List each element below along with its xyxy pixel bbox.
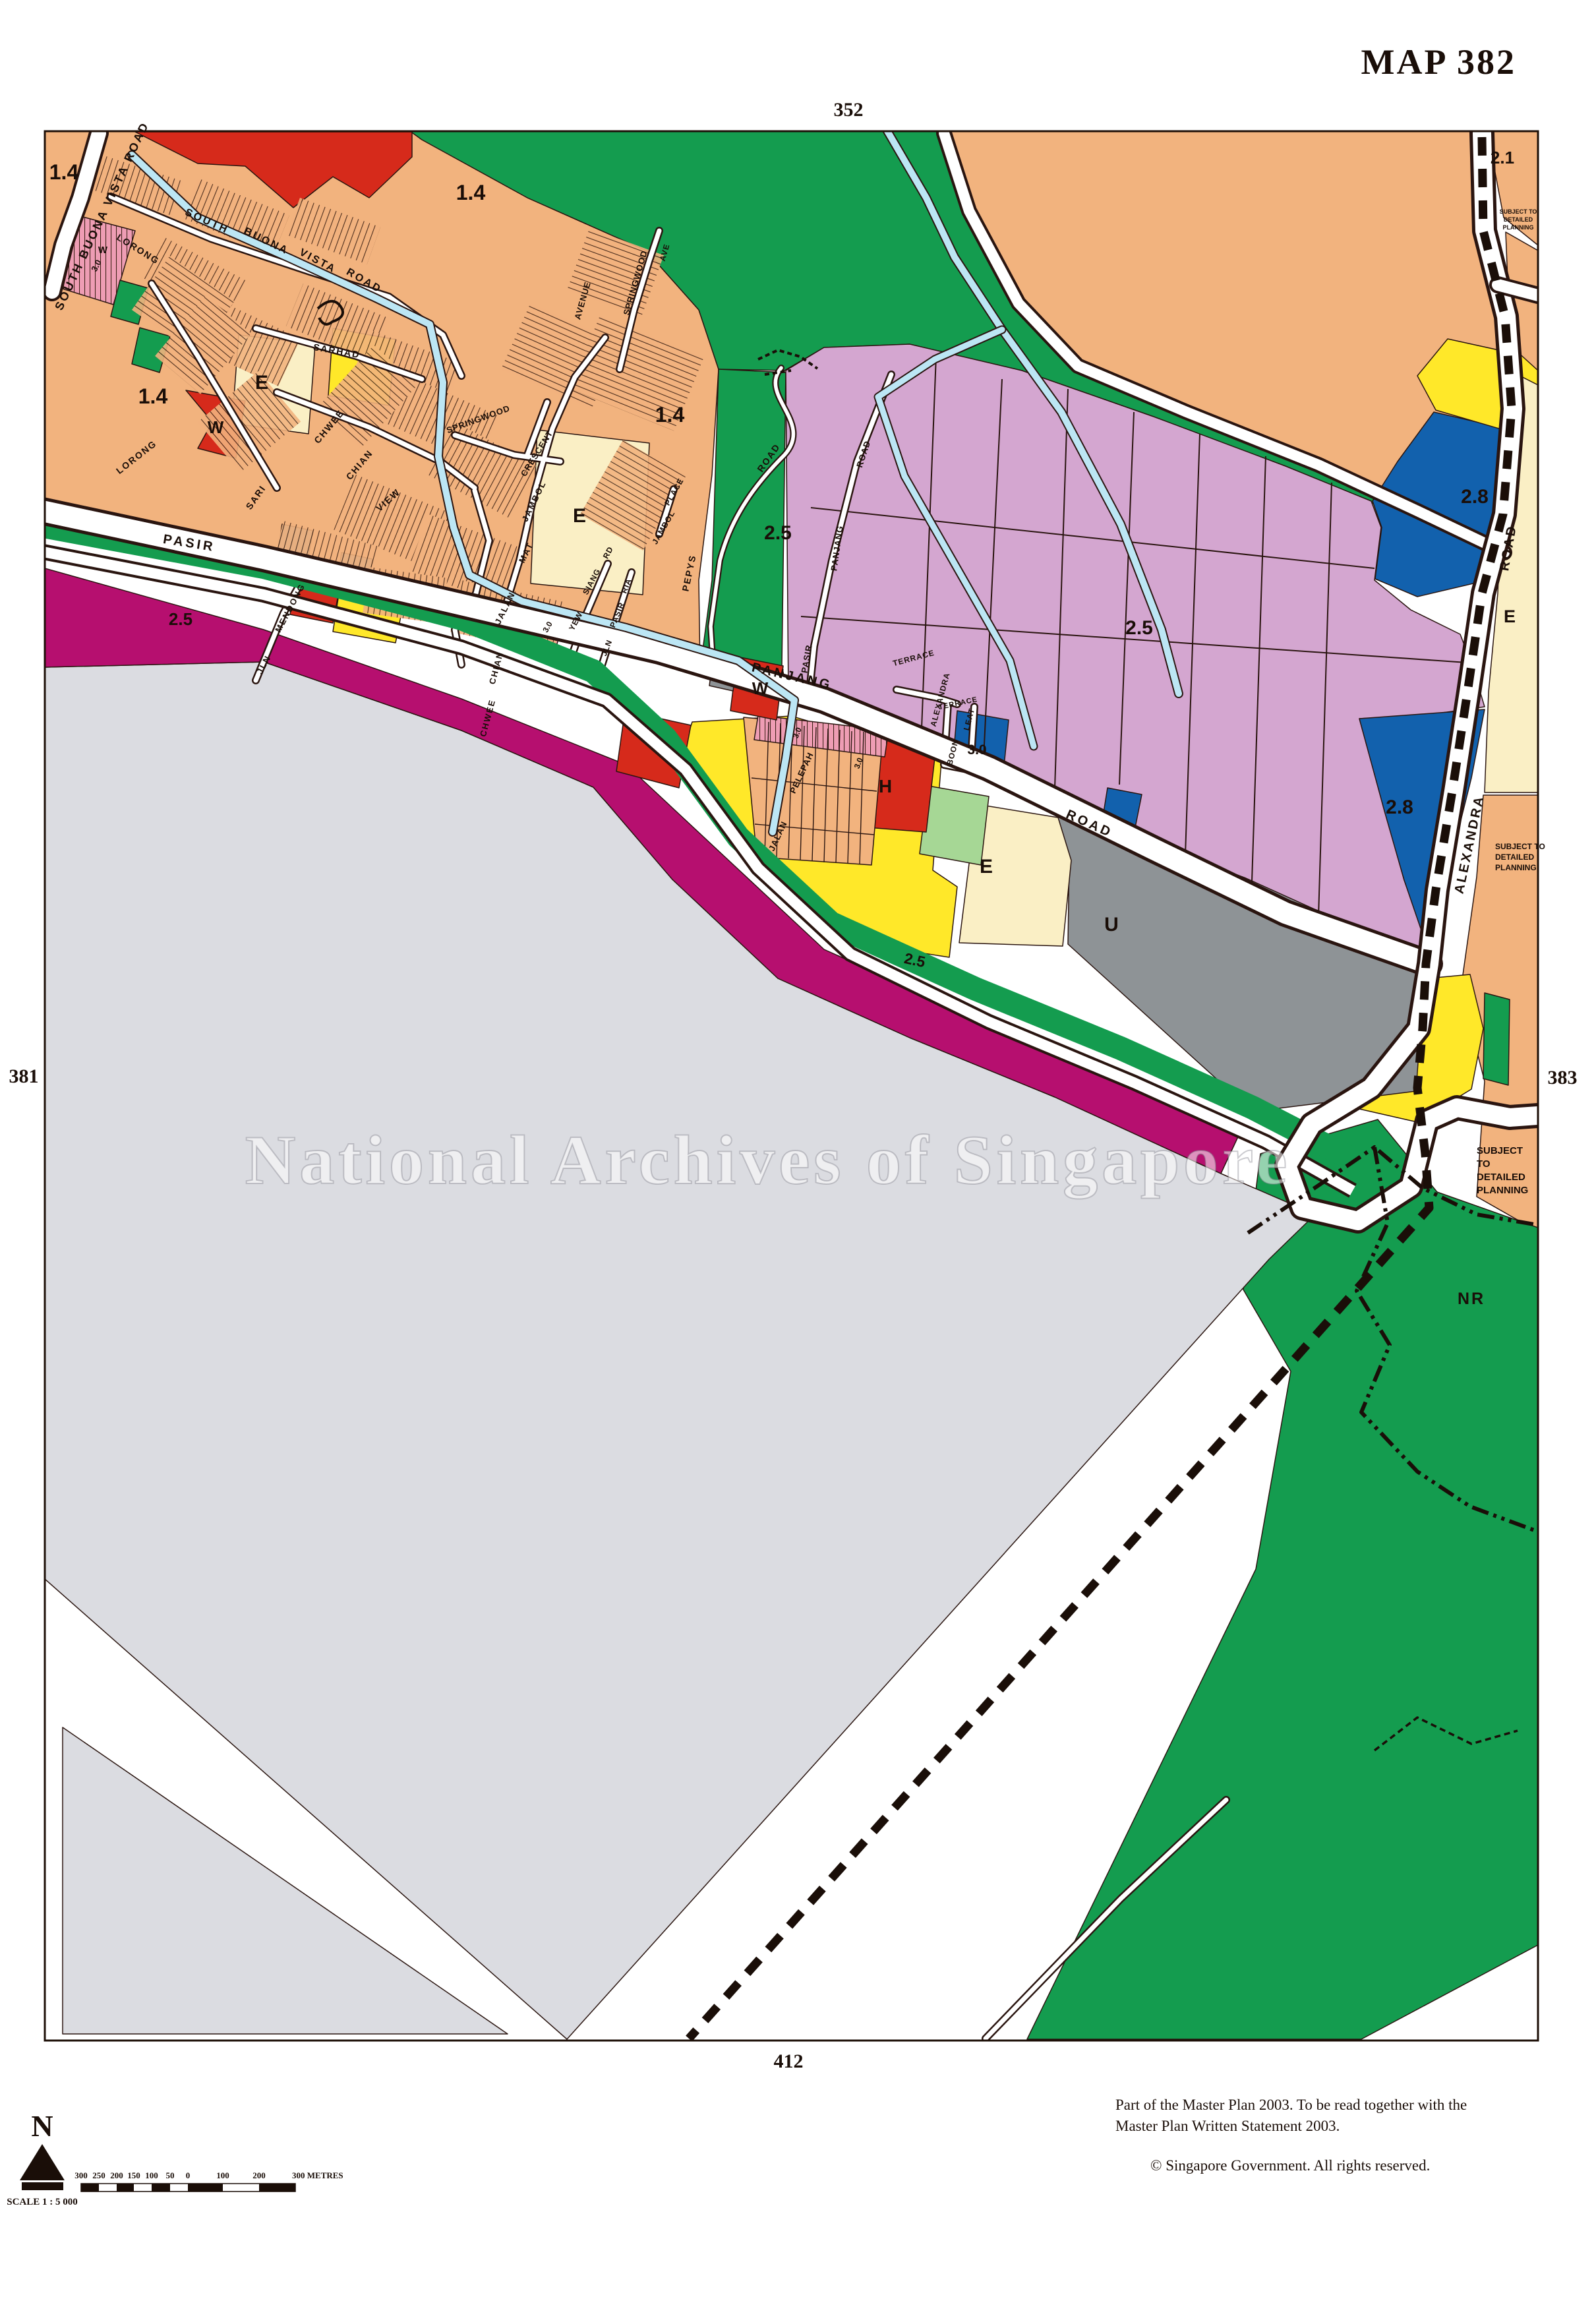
scale-ticks: 300250200150100500100200300 METRES <box>74 2170 343 2180</box>
zone-label-30-blue: 3.0 <box>967 742 986 758</box>
note-subject-tiny-2: DETAILED <box>1504 216 1533 223</box>
note-subject-mid-3: PLANNING <box>1495 863 1537 872</box>
scale-tick-1: 250 <box>92 2170 105 2180</box>
watermark: National Archives of Singapore <box>245 1121 1291 1199</box>
zone-label-28-b: 2.8 <box>1386 796 1413 818</box>
note-subject-tiny-1: SUBJECT TO <box>1500 208 1537 215</box>
footer-copyright: © Singapore Government. All rights reser… <box>1150 2157 1430 2174</box>
grid-ref-right: 383 <box>1548 1067 1578 1089</box>
zone-label-28-a: 2.8 <box>1461 486 1489 508</box>
zone-label-h: H <box>879 776 892 796</box>
note-subject-mid-2: DETAILED <box>1495 852 1534 862</box>
zone-label-14-b: 1.4 <box>138 384 168 408</box>
scale-tick-9: 300 METRES <box>292 2170 343 2180</box>
grid-ref-top: 352 <box>834 99 864 121</box>
scale-bar: 300250200150100500100200300 METRES <box>74 2170 343 2192</box>
note-subject-big-4: PLANNING <box>1477 1185 1528 1196</box>
zone-label-14-d: 1.4 <box>655 403 685 427</box>
note-subject-big-1: SUBJECT <box>1477 1145 1523 1156</box>
note-subject-tiny-3: PLANNING <box>1503 224 1534 231</box>
zone-label-e-a: E <box>255 372 268 394</box>
zone-label-25-a: 2.5 <box>764 522 792 544</box>
zone-label-14-a: 1.4 <box>49 160 79 184</box>
page: National Archives of Singapore MAP 382 3… <box>0 0 1596 2297</box>
scale-tick-8: 200 <box>252 2170 266 2180</box>
zone-label-e-b: E <box>573 505 586 527</box>
zone-label-e-d: E <box>1504 607 1516 626</box>
zone-label-25-c: 2.5 <box>169 609 192 629</box>
zone-label-14-c: 1.4 <box>456 181 486 204</box>
map-canvas <box>33 130 1538 2041</box>
grid-ref-bottom: 412 <box>774 2050 804 2072</box>
note-subject-big-3: DETAILED <box>1477 1172 1525 1183</box>
scale-tick-2: 200 <box>110 2170 123 2180</box>
scale-tick-0: 300 <box>74 2170 88 2180</box>
zone-label-w-a: W <box>98 245 108 256</box>
scale-tick-4: 100 <box>145 2170 158 2180</box>
scale-tick-6: 0 <box>186 2170 191 2180</box>
footer-note-line1: Part of the Master Plan 2003. To be read… <box>1115 2097 1467 2113</box>
scale-text: SCALE 1 : 5 000 <box>7 2197 78 2207</box>
zone-label-w-b: W <box>208 417 224 437</box>
note-subject-big-2: TO <box>1477 1158 1491 1170</box>
north-arrow-base <box>22 2182 63 2190</box>
scale-tick-7: 100 <box>216 2170 229 2180</box>
zone-green-sliver-east <box>1483 993 1510 1085</box>
zone-label-w-c: W <box>752 678 769 698</box>
scale-tick-3: 150 <box>127 2170 140 2180</box>
footer-note-line2: Master Plan Written Statement 2003. <box>1115 2118 1340 2134</box>
grid-ref-left: 381 <box>9 1065 39 1087</box>
zone-label-e-c: E <box>980 856 993 878</box>
zone-label-25-b: 2.5 <box>1125 617 1153 639</box>
note-subject-mid-1: SUBJECT TO <box>1495 842 1545 851</box>
zone-label-u: U <box>1104 914 1119 936</box>
north-label: N <box>31 2109 53 2143</box>
compass: N SCALE 1 : 5 000 <box>7 2109 78 2207</box>
zone-label-nr: NR <box>1458 1290 1485 1308</box>
north-arrow-icon <box>20 2144 65 2180</box>
map-title: MAP 382 <box>1361 42 1516 82</box>
zone-label-21: 2.1 <box>1491 148 1514 167</box>
scale-tick-5: 50 <box>166 2170 175 2180</box>
